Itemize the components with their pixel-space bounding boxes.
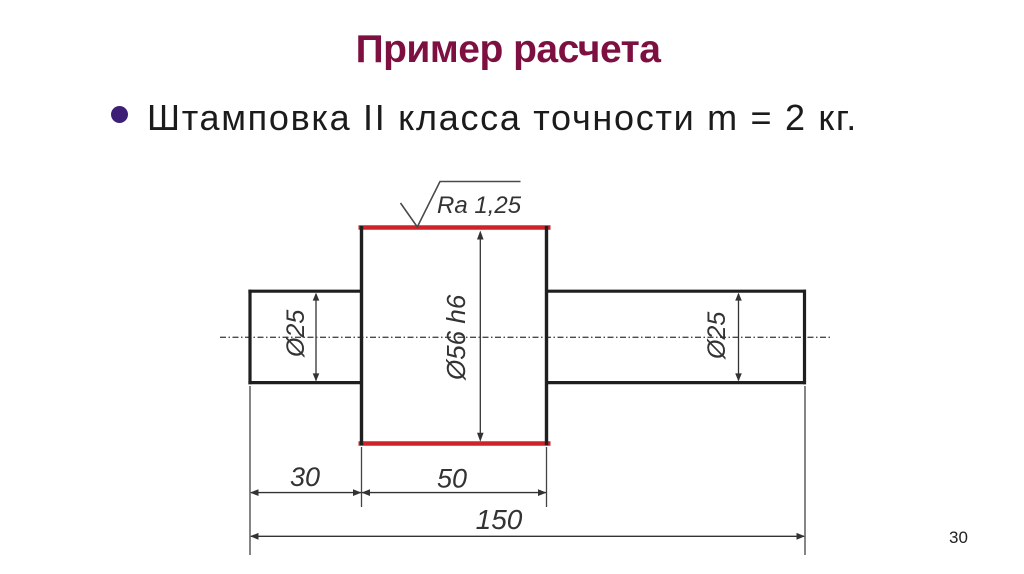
svg-text:Ø25: Ø25 [703,312,731,360]
svg-text:Ø25: Ø25 [282,310,310,358]
svg-text:Ra 1,25: Ra 1,25 [437,192,522,219]
svg-text:Ø56 h6: Ø56 h6 [441,294,471,381]
svg-text:150: 150 [476,504,523,535]
svg-text:50: 50 [437,464,467,494]
svg-text:30: 30 [290,462,320,492]
